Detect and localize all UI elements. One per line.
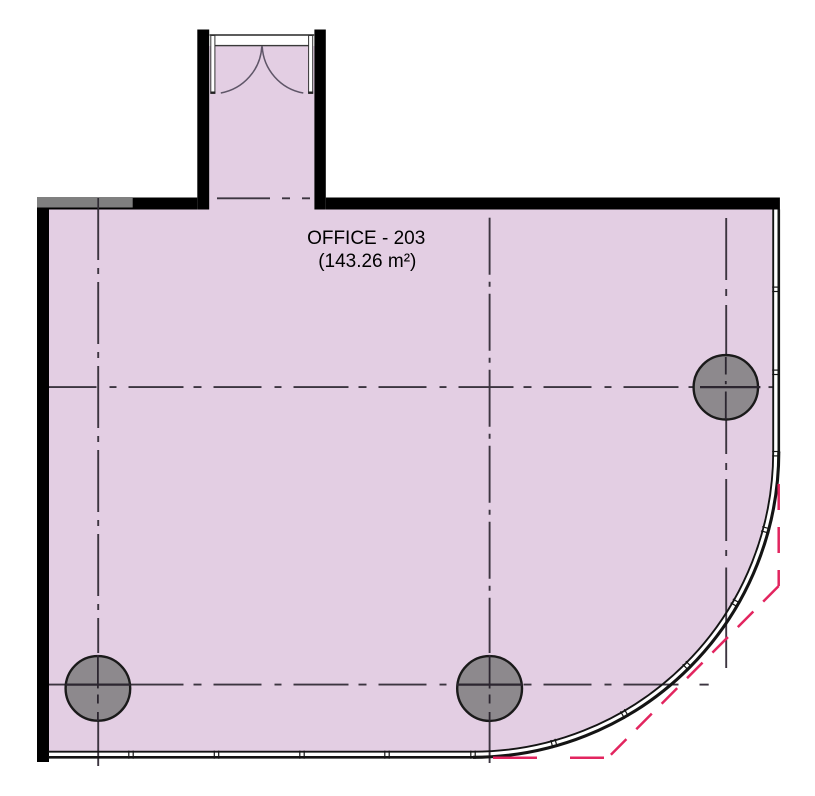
svg-text:(143.26 m²): (143.26 m²) [318, 251, 416, 272]
svg-text:OFFICE - 203: OFFICE - 203 [307, 228, 425, 249]
